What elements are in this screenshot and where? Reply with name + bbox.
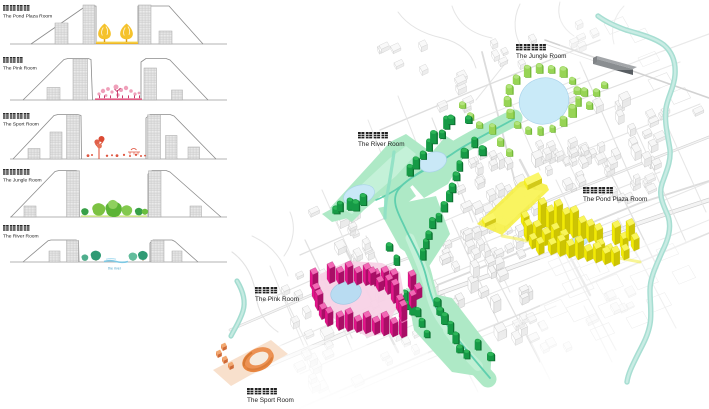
svg-text:The Pink Room: The Pink Room (3, 65, 37, 71)
svg-text:The Pond Plaza Room: The Pond Plaza Room (583, 196, 647, 203)
svg-text:The River Room: The River Room (358, 141, 405, 148)
svg-text:The Jungle Room: The Jungle Room (3, 177, 42, 183)
svg-text:The Sport Room: The Sport Room (3, 121, 39, 127)
svg-text:The Pond Plaza Room: The Pond Plaza Room (3, 13, 52, 19)
svg-text:The Jungle Room: The Jungle Room (516, 53, 566, 60)
svg-text:The River Room: The River Room (3, 233, 39, 239)
svg-text:The Sport Room: The Sport Room (247, 397, 294, 404)
svg-text:the river: the river (108, 267, 122, 271)
svg-text:The Pink Room: The Pink Room (255, 296, 299, 303)
